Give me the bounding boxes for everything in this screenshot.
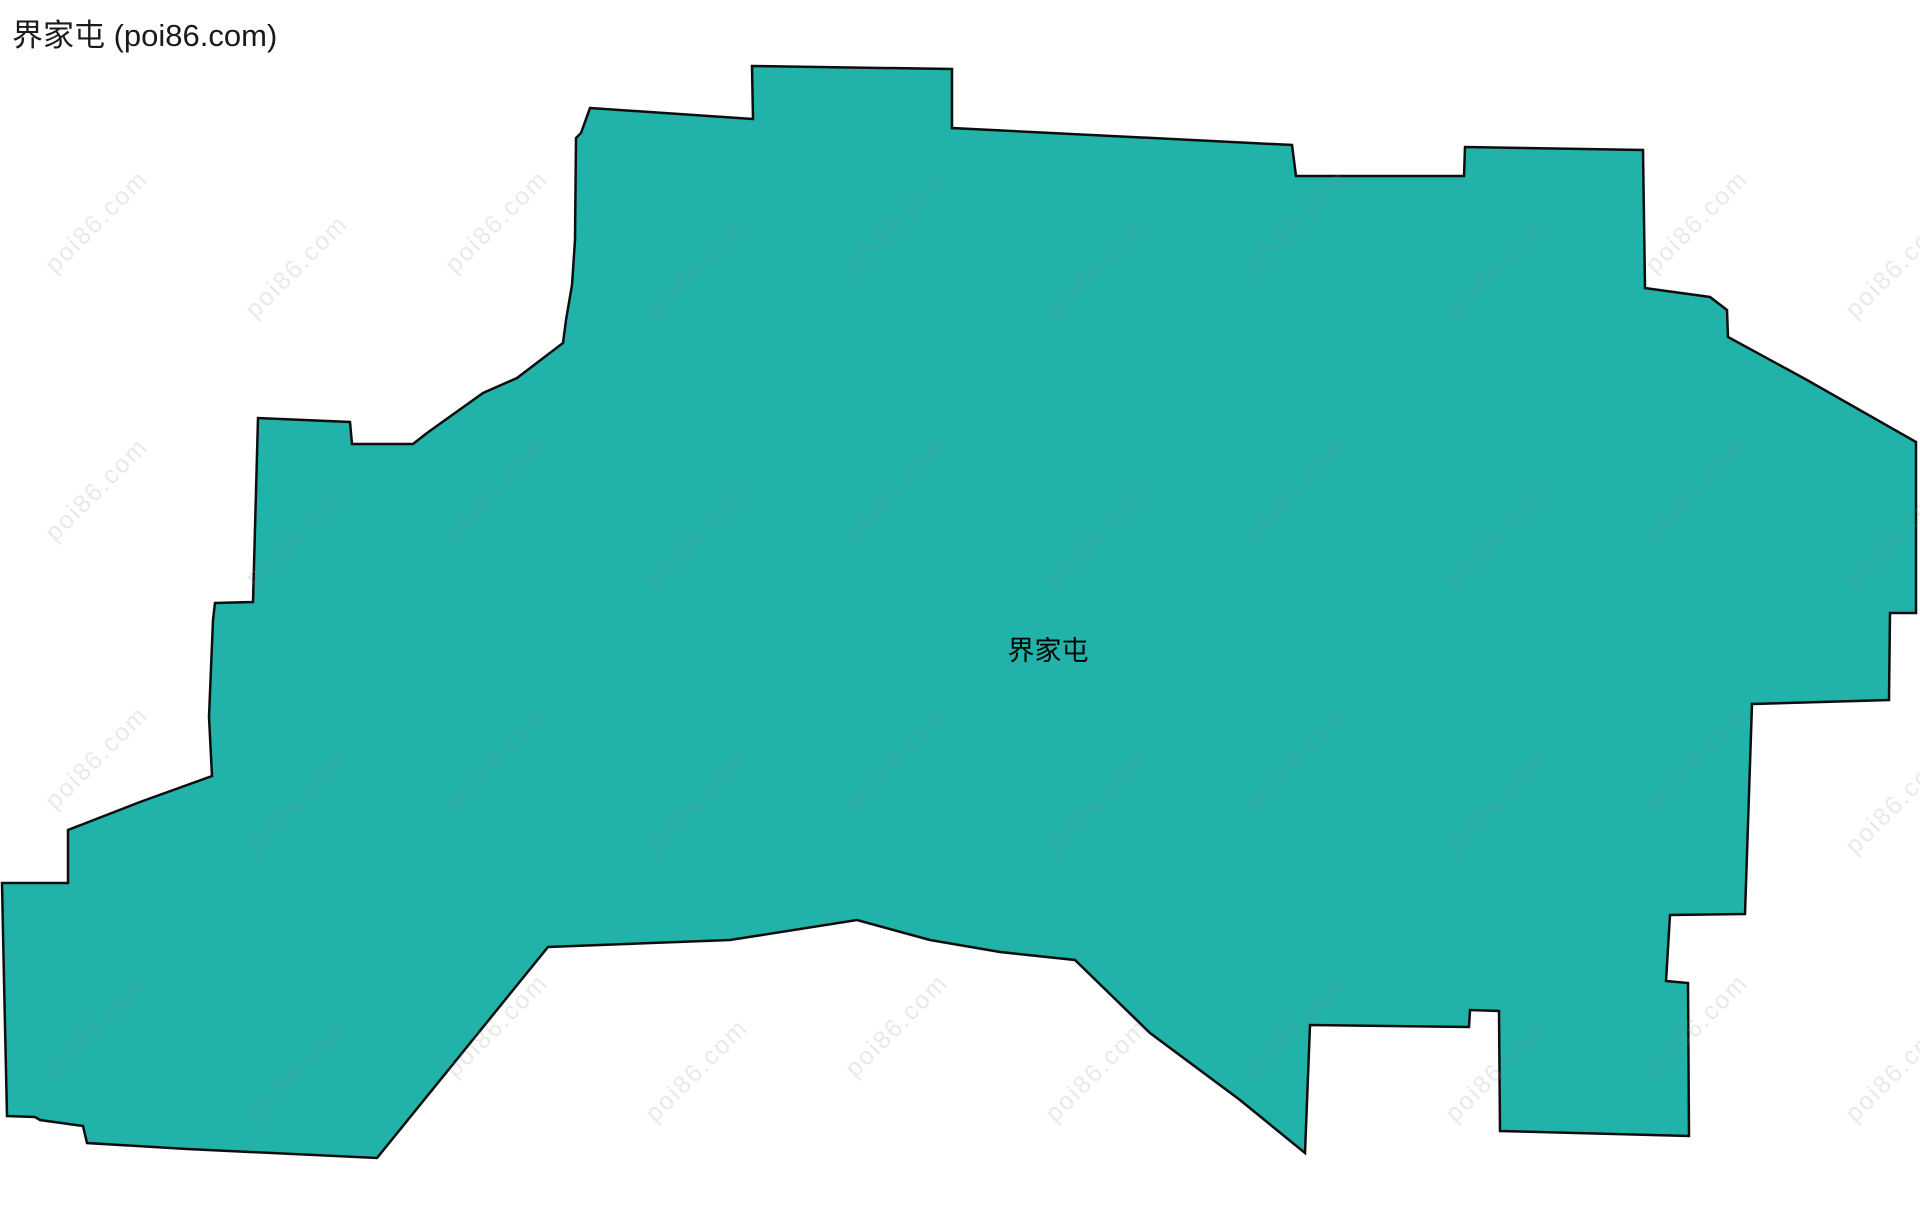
page-title: 界家屯 (poi86.com) bbox=[12, 10, 277, 55]
map-canvas: 界家屯 (poi86.com) 界家屯 poi86.compoi86.compo… bbox=[0, 0, 1920, 1225]
region-map: 界家屯 bbox=[0, 0, 1920, 1225]
region-label: 界家屯 bbox=[1008, 636, 1089, 666]
region-boundary-polygon bbox=[2, 66, 1916, 1158]
